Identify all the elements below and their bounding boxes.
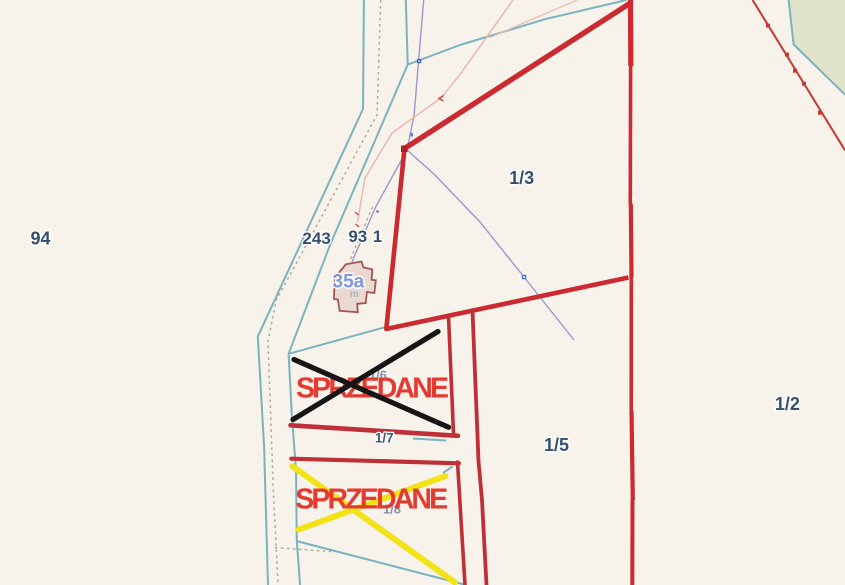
svg-text:35a: 35a xyxy=(333,272,365,293)
svg-text:SPRZEDANE: SPRZEDANE xyxy=(295,484,447,516)
svg-text:1: 1 xyxy=(373,227,382,246)
svg-text:243: 243 xyxy=(302,229,330,248)
svg-text:1/5: 1/5 xyxy=(544,435,569,455)
svg-text:SPRZEDANE: SPRZEDANE xyxy=(296,372,448,404)
svg-text:1/7: 1/7 xyxy=(375,431,394,446)
svg-text:1/3: 1/3 xyxy=(509,168,534,188)
svg-text:93: 93 xyxy=(348,227,367,246)
svg-text:94: 94 xyxy=(30,229,50,249)
svg-text:m: m xyxy=(350,289,359,300)
svg-text:1/2: 1/2 xyxy=(775,394,800,414)
